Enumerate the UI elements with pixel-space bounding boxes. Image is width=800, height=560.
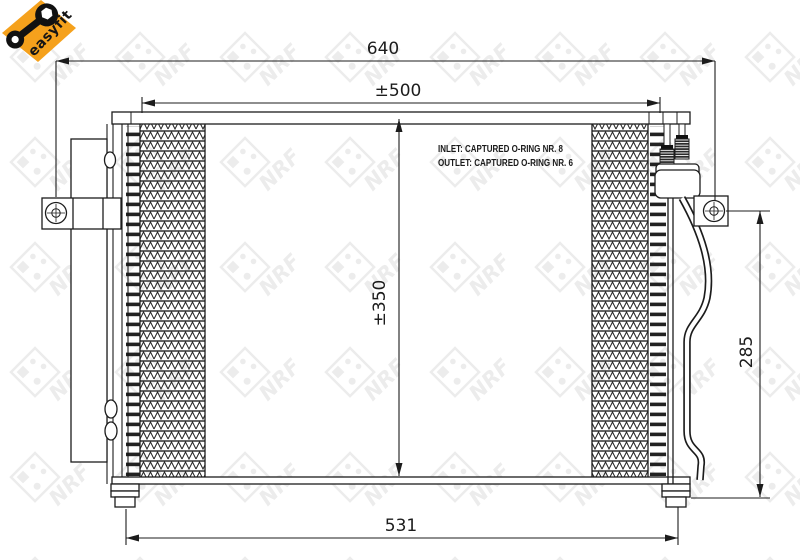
left-side-plate (71, 139, 107, 462)
inlet-note: INLET: CAPTURED O-RING NR. 8 (438, 144, 563, 155)
label-total-width: 640 (367, 39, 399, 59)
grommet (105, 422, 117, 440)
label-core-height: ±350 (370, 280, 390, 327)
grommet (105, 400, 117, 418)
drier-body (655, 170, 700, 198)
condenser-drawing: NRF (0, 0, 800, 560)
right-foot (662, 484, 690, 491)
label-core-width: ±500 (375, 81, 422, 101)
top-header-plate (112, 112, 690, 124)
left-foot (111, 484, 139, 491)
technical-drawing-page: NRF (0, 0, 800, 560)
grommet (105, 152, 116, 168)
bottom-plate (112, 477, 690, 484)
outlet-note: OUTLET: CAPTURED O-RING NR. 6 (438, 158, 573, 169)
outlet-stud (675, 139, 689, 159)
label-mount-width: 531 (385, 516, 417, 536)
label-bracket-height: 285 (737, 336, 757, 368)
